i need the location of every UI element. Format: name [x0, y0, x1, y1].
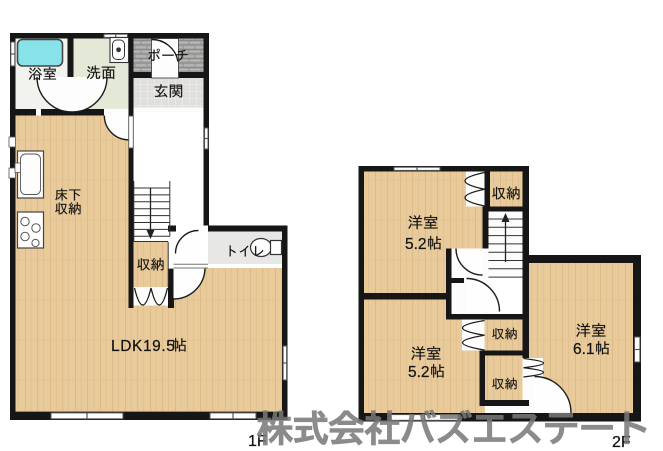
svg-text:5.2: 5.2	[405, 236, 427, 253]
svg-text:6.1: 6.1	[573, 341, 595, 358]
svg-text:LDK19.5: LDK19.5	[111, 338, 176, 355]
svg-text:5.2: 5.2	[408, 364, 430, 381]
